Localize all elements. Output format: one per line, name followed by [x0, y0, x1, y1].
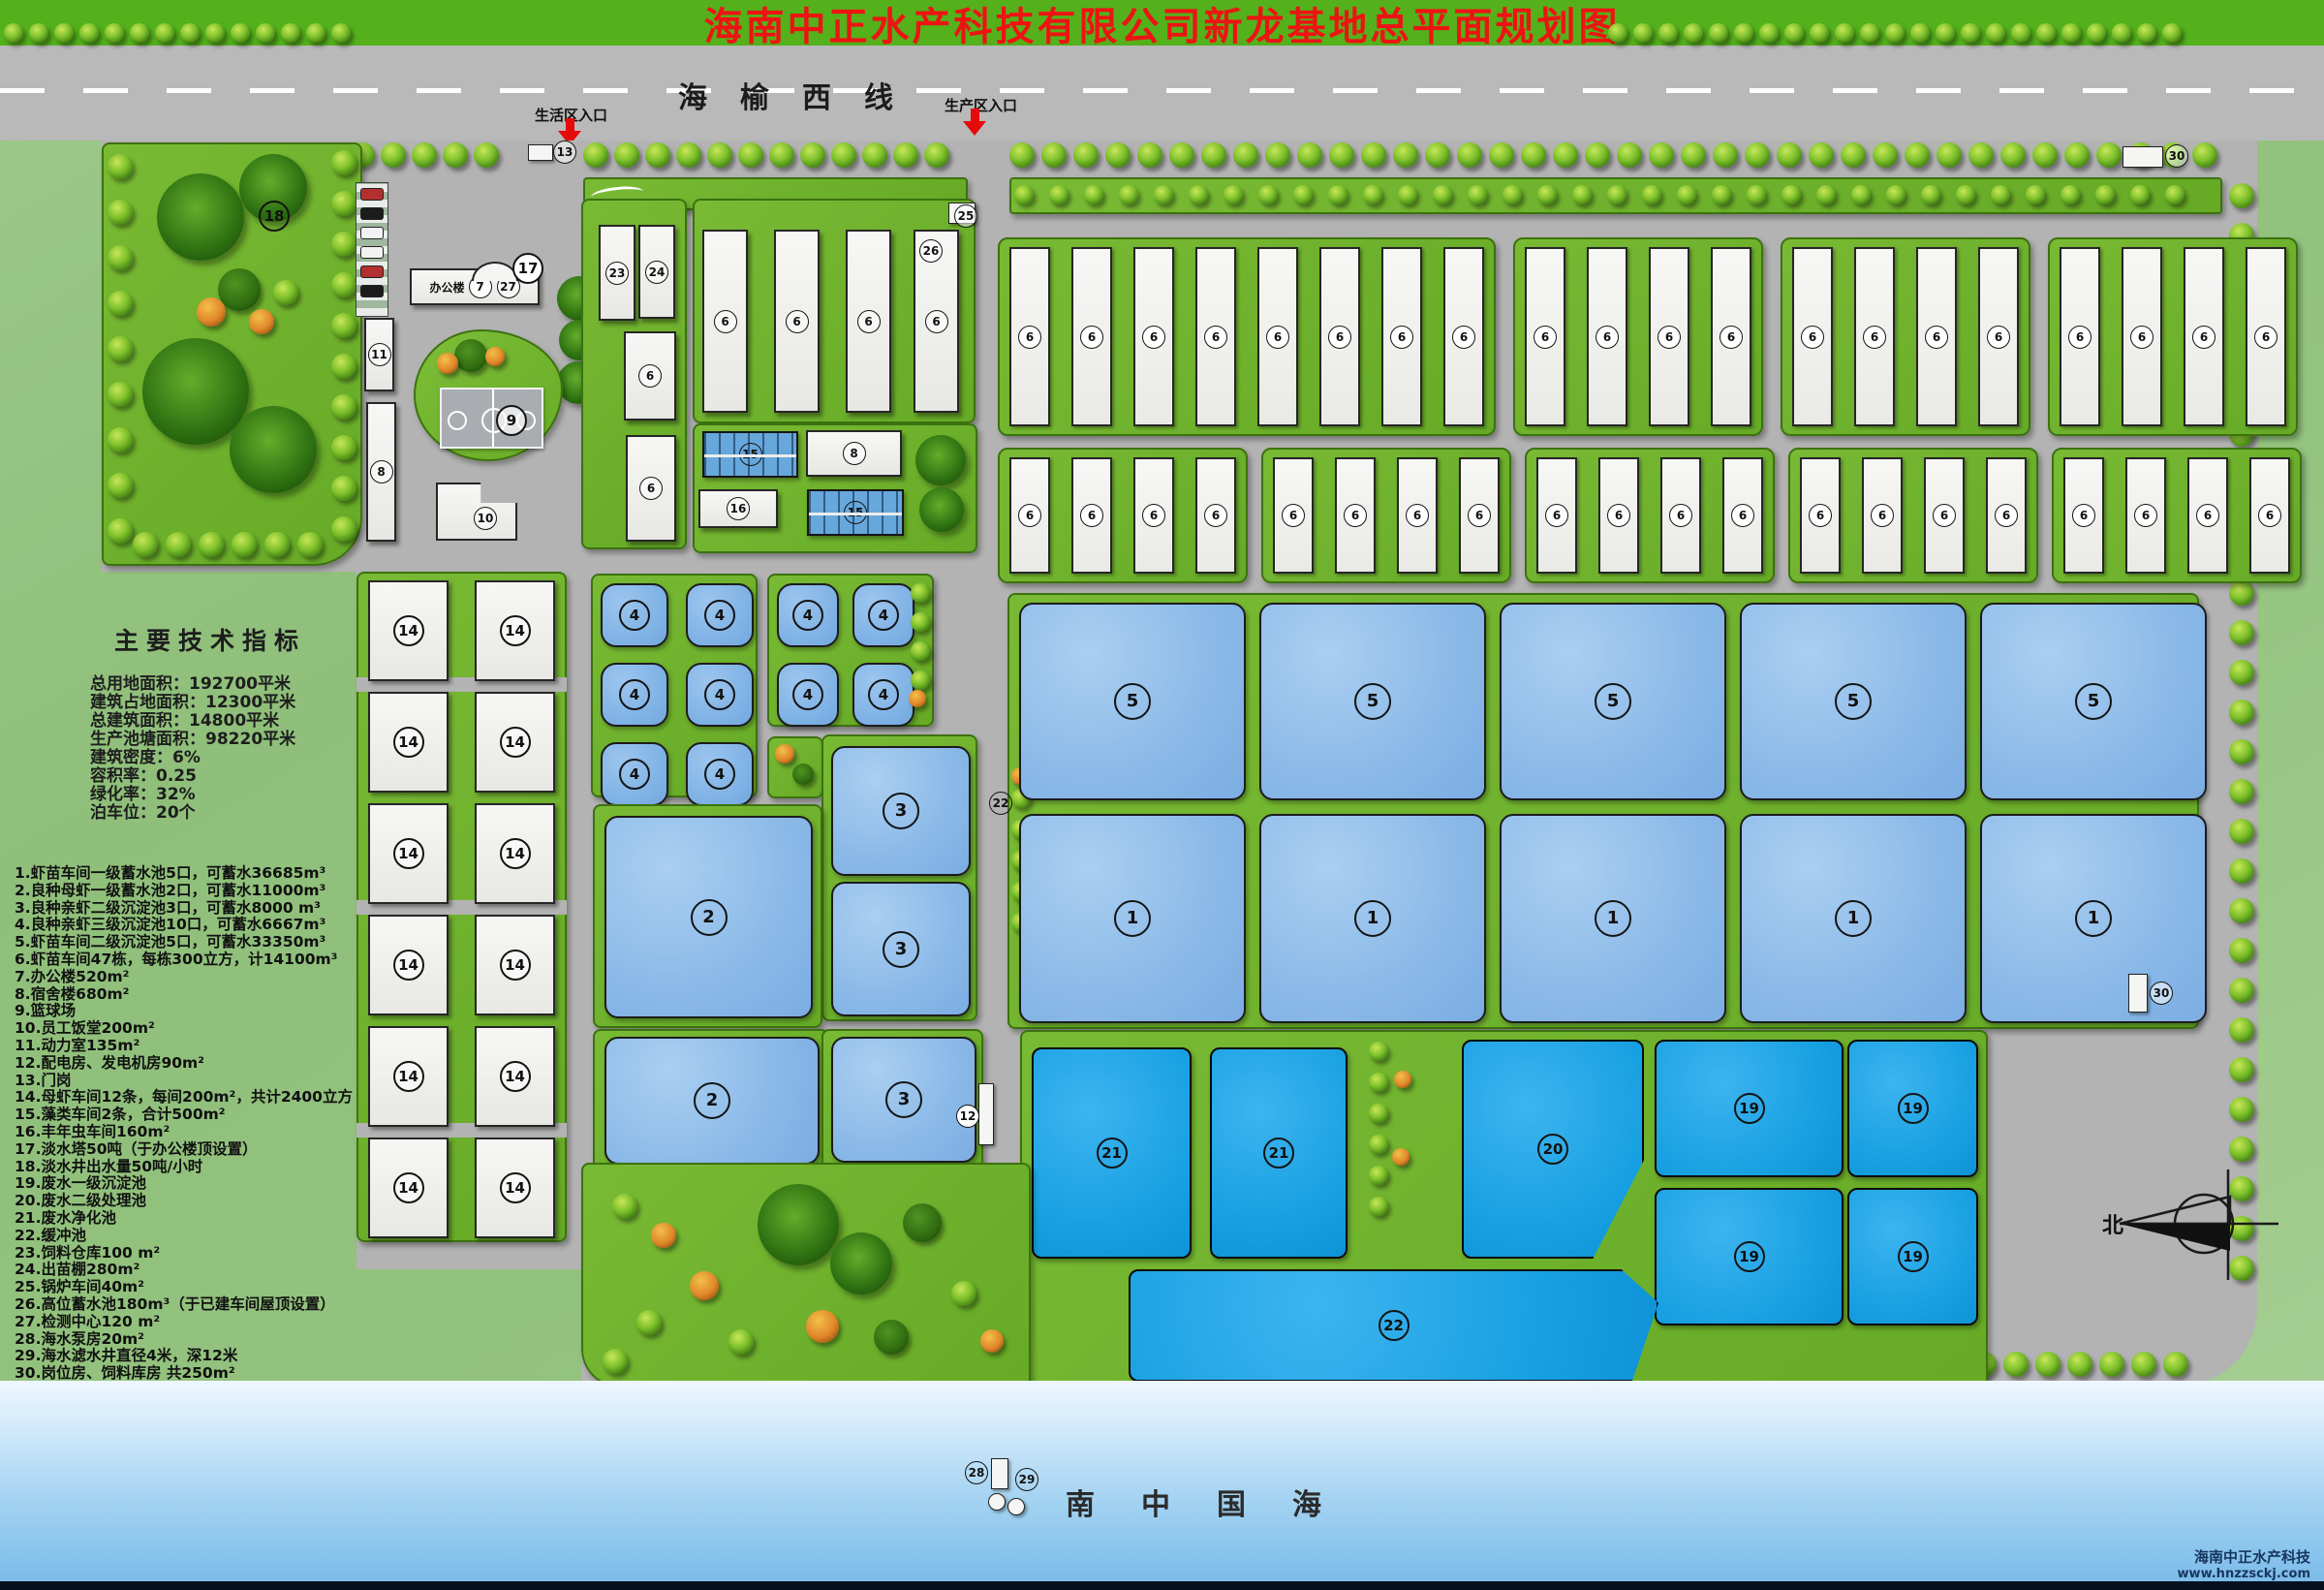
label-6-workshop: 6	[1995, 504, 2018, 527]
tree-row	[583, 142, 949, 168]
workshop-building: 6	[1133, 247, 1174, 426]
feed-warehouse-parcel: 23 24 6 6	[581, 199, 687, 549]
tree-icon	[1073, 142, 1099, 168]
workshop-building: 6	[1381, 247, 1422, 426]
tree-icon	[1537, 185, 1557, 204]
south-park	[581, 1163, 1031, 1387]
label-4-settling: 4	[792, 679, 823, 710]
workshop-building: 6	[1071, 457, 1112, 574]
seedling-shed-building: 24	[638, 225, 675, 319]
tree-icon	[108, 427, 133, 452]
tree-icon	[2229, 620, 2254, 645]
tree-icon	[1677, 185, 1696, 204]
tree-icon	[256, 23, 275, 43]
label-6-workshop: 6	[2072, 504, 2095, 527]
mother-shrimp-workshop: 14	[368, 803, 449, 904]
tree-icon	[1784, 23, 1804, 43]
label-6-workshop: 6	[2192, 326, 2216, 349]
label-6-workshop: 6	[1080, 504, 1103, 527]
tree-icon	[1860, 23, 1879, 43]
tree-icon	[636, 1310, 662, 1335]
pond-row: 44	[593, 583, 756, 647]
workshop-building: 6	[1443, 247, 1484, 426]
settling-pond-block-b: 44 44	[767, 574, 934, 727]
tree-icon	[105, 23, 124, 43]
tree-icon	[1521, 142, 1546, 168]
tertiary-settling-pond: 4	[777, 663, 839, 727]
workshop-building: 6	[1862, 457, 1903, 574]
tree-icon	[1684, 23, 1703, 43]
secondary-settling-pond: 3	[831, 746, 971, 876]
tree-icon	[108, 200, 133, 225]
label-6-workshop: 6	[2196, 504, 2219, 527]
label-8-dormitory: 8	[370, 460, 393, 483]
workshop-building: 6	[1335, 457, 1376, 574]
mother-shrimp-workshop: 14	[475, 915, 555, 1015]
label-14-mother-shrimp: 14	[500, 615, 531, 646]
tree-icon	[2137, 23, 2156, 43]
tree-icon	[2229, 779, 2254, 804]
workshop-building: 6	[1660, 457, 1701, 574]
label-5-pond: 5	[2075, 683, 2112, 720]
tree-icon	[437, 353, 458, 374]
basketball-court: 9	[440, 388, 543, 449]
workshop-building: 6	[1986, 457, 2027, 574]
label-14-mother-shrimp: 14	[500, 1172, 531, 1203]
tree-icon	[4, 23, 23, 43]
workshop-building: 6	[1916, 247, 1957, 426]
tree-icon	[2229, 739, 2254, 764]
tree-icon	[645, 142, 670, 168]
workshop-row: 1414	[358, 803, 565, 900]
label-16-brine-shrimp: 16	[727, 497, 750, 520]
label-6-workshop: 6	[1452, 326, 1475, 349]
tree-icon	[2229, 1017, 2254, 1043]
tree-icon	[1398, 185, 1417, 204]
label-30-post-house: 30	[2150, 982, 2173, 1005]
label-15-algae: 15	[739, 443, 762, 466]
pond-row: 44	[593, 742, 756, 806]
filter-well	[988, 1493, 1006, 1511]
secondary-settling-parcel: 3	[821, 1029, 983, 1169]
label-9-basketball-court: 9	[496, 405, 527, 436]
label-6-workshop: 6	[2254, 326, 2278, 349]
tree-icon	[331, 394, 356, 420]
label-6-workshop: 6	[1406, 504, 1429, 527]
palm-tree-icon	[915, 435, 966, 485]
site-area: 18 13 办公楼 7 27 17 11 8 10	[102, 140, 2257, 1386]
tree-icon	[2229, 1137, 2254, 1162]
label-6-workshop: 6	[1545, 504, 1568, 527]
sea-name-char: 南	[1066, 1481, 1095, 1523]
tree-icon	[133, 532, 158, 557]
tree-icon	[2229, 1097, 2254, 1122]
label-4-settling: 4	[619, 679, 650, 710]
compass-north-label: 北	[2102, 1214, 2123, 1238]
tree-icon	[614, 142, 639, 168]
tree-icon	[2096, 142, 2122, 168]
algae-workshop-pond: 15	[807, 489, 904, 536]
tree-icon	[792, 764, 814, 785]
workshop-building: 6	[774, 230, 820, 413]
mother-shrimp-workshop: 14	[368, 580, 449, 681]
tree-icon	[264, 532, 290, 557]
tree-icon	[1607, 185, 1627, 204]
workshop-building: 6	[1854, 247, 1895, 426]
palm-tree-icon	[157, 173, 244, 261]
tree-icon	[1841, 142, 1866, 168]
pond-row-1: 11111	[1019, 814, 2207, 1023]
tertiary-settling-pond: 4	[601, 742, 668, 806]
tree-icon	[331, 516, 356, 542]
label-6-workshop: 6	[786, 310, 809, 333]
tree-icon	[108, 245, 133, 270]
feed-warehouse-building: 23	[599, 225, 635, 321]
car-icon	[360, 265, 384, 278]
label-5-pond: 5	[1835, 683, 1872, 720]
tree-icon	[331, 476, 356, 501]
pond-row: 44	[769, 663, 932, 727]
mother-shrimp-workshop: 14	[368, 1026, 449, 1127]
label-14-mother-shrimp: 14	[393, 1061, 424, 1092]
label-6-workshop: 6	[1204, 504, 1227, 527]
tree-icon	[862, 142, 887, 168]
tree-icon	[1851, 185, 1871, 204]
tree-icon	[1658, 23, 1678, 43]
tree-icon	[1968, 142, 1994, 168]
tertiary-settling-pond: 4	[852, 663, 914, 727]
label-21-purification: 21	[1097, 1138, 1128, 1169]
car-icon	[360, 285, 384, 297]
tree-icon	[1369, 1073, 1388, 1092]
tree-icon	[1369, 1166, 1388, 1185]
tree-icon	[2061, 185, 2080, 204]
tree-icon	[331, 191, 356, 216]
tree-icon	[1885, 23, 1905, 43]
workshop-building: 6	[1800, 457, 1841, 574]
label-22-buffer: 22	[1379, 1310, 1410, 1341]
tree-icon	[1329, 142, 1354, 168]
tree-icon	[2229, 660, 2254, 685]
label-14-mother-shrimp: 14	[500, 1061, 531, 1092]
workshop-building: 6	[1459, 457, 1500, 574]
tree-icon	[155, 23, 174, 43]
label-6-workshop: 6	[1266, 326, 1289, 349]
label-1-pond: 1	[2075, 900, 2112, 937]
label-6-workshop: 6	[1871, 504, 1894, 527]
workshop-building: 6	[2125, 457, 2166, 574]
brine-shrimp-building: 16	[698, 489, 778, 528]
tree-icon	[231, 23, 250, 43]
workshop-building: 6	[1195, 247, 1236, 426]
tree-icon	[603, 1349, 628, 1374]
tree-icon	[911, 583, 930, 603]
tree-icon	[1363, 185, 1382, 204]
mother-shrimp-workshop: 14	[368, 1138, 449, 1238]
label-6-workshop: 6	[638, 364, 662, 388]
palm-tree-icon	[919, 487, 964, 532]
workshop-building: 6	[1598, 457, 1639, 574]
tree-icon	[738, 142, 763, 168]
tree-icon	[800, 142, 825, 168]
workshop-group: 6666	[998, 448, 1248, 583]
tertiary-settling-pond: 4	[777, 583, 839, 647]
tree-icon	[1105, 142, 1131, 168]
car-icon	[360, 227, 384, 239]
highway	[0, 46, 2324, 140]
workshop-building: 6	[1649, 247, 1689, 426]
tree-icon	[108, 154, 133, 179]
tree-icon	[331, 354, 356, 379]
tree-icon	[1991, 185, 2010, 204]
tertiary-settling-pond: 4	[686, 583, 754, 647]
tree-icon	[2229, 1057, 2254, 1082]
secondary-settling-parcel: 3 3	[821, 734, 977, 1021]
tree-icon	[180, 23, 200, 43]
tree-icon	[79, 23, 99, 43]
label-20-treatment: 20	[1537, 1134, 1568, 1165]
sea-name-char: 国	[1217, 1481, 1246, 1523]
tree-icon	[2229, 700, 2254, 725]
tree-icon	[903, 1203, 942, 1242]
tree-icon	[911, 612, 930, 632]
workshop-building: 6	[1722, 457, 1763, 574]
tree-icon	[454, 339, 487, 372]
tree-icon	[2036, 23, 2056, 43]
workshop-row: 1414	[358, 1138, 565, 1234]
car-icon	[360, 207, 384, 220]
workshop-building: 6	[1924, 457, 1965, 574]
tree-icon	[1816, 185, 1836, 204]
tree-icon	[1369, 1042, 1388, 1061]
tree-icon	[1759, 23, 1779, 43]
tree-icon	[29, 23, 48, 43]
tree-icon	[874, 1320, 909, 1355]
label-14-mother-shrimp: 14	[393, 950, 424, 981]
tree-icon	[676, 142, 701, 168]
tree-icon	[1468, 185, 1487, 204]
label-6-workshop: 6	[2068, 326, 2092, 349]
tree-icon	[1224, 185, 1243, 204]
tree-icon	[1457, 142, 1482, 168]
mother-shrimp-storage-pond: 2	[604, 816, 813, 1018]
tree-column	[1369, 1042, 1388, 1216]
workshop-group: 6666	[1525, 448, 1775, 583]
tree-icon	[1713, 142, 1738, 168]
production-pond-parcel: 55555 11111	[1007, 593, 2199, 1029]
label-21-purification: 21	[1263, 1138, 1294, 1169]
tree-icon	[690, 1271, 719, 1300]
workshop-building: 6	[2063, 457, 2104, 574]
secondary-workshop-pond: 5	[1019, 603, 1246, 800]
tree-icon	[199, 532, 224, 557]
workshop-building: 6	[1525, 247, 1565, 426]
pond-row: 44	[769, 583, 932, 647]
label-12-generator: 12	[956, 1105, 979, 1128]
label-29-filter-well: 29	[1015, 1468, 1038, 1491]
workshop-group: 6666	[1513, 237, 1763, 436]
label-1-pond: 1	[1114, 900, 1151, 937]
car-icon	[360, 188, 384, 201]
tree-icon	[1905, 142, 1930, 168]
workshop-row: 6666 6666 6666 6666 6666	[998, 448, 2302, 583]
tree-icon	[1369, 1135, 1388, 1154]
bottom-border	[0, 1581, 2324, 1590]
secondary-treatment-pond: 20	[1462, 1040, 1644, 1259]
tree-icon	[2011, 23, 2030, 43]
label-6-workshop: 6	[1142, 504, 1165, 527]
primary-settling-pond: 19	[1847, 1188, 1978, 1325]
power-room-building: 11	[364, 318, 394, 391]
tree-icon	[2095, 185, 2115, 204]
pond-row-5: 55555	[1019, 603, 2207, 800]
tree-icon	[2229, 183, 2254, 208]
sea-name-char: 海	[1292, 1481, 1321, 1523]
label-3-settling: 3	[885, 1081, 922, 1118]
label-6-workshop: 6	[1596, 326, 1619, 349]
mother-shrimp-workshop: 14	[368, 692, 449, 793]
tree-row	[4, 23, 351, 43]
court-park: 9	[414, 329, 563, 461]
label-6-workshop: 6	[1658, 326, 1681, 349]
tree-icon	[2229, 978, 2254, 1003]
label-5-pond: 5	[1114, 683, 1151, 720]
label-6-workshop: 6	[639, 477, 663, 500]
tree-row	[133, 532, 323, 557]
tree-icon	[1009, 142, 1035, 168]
tree-icon	[1297, 142, 1322, 168]
tree-icon	[1709, 23, 1728, 43]
tree-icon	[1986, 23, 2005, 43]
label-13-gate: 13	[553, 140, 576, 164]
tree-icon	[2192, 142, 2217, 168]
tree-icon	[1258, 185, 1278, 204]
tree-icon	[2162, 23, 2182, 43]
label-18-freshwater-well: 18	[259, 201, 290, 232]
label-6-workshop: 6	[1018, 326, 1041, 349]
tree-icon	[412, 142, 437, 168]
tree-icon	[728, 1329, 754, 1355]
label-4-settling: 4	[868, 679, 899, 710]
tree-icon	[951, 1281, 976, 1306]
gate-house	[528, 144, 553, 161]
primary-storage-pond: 1	[1019, 814, 1246, 1023]
label-17-water-tower: 17	[512, 253, 543, 284]
tree-icon	[775, 744, 794, 764]
mother-shrimp-workshop: 14	[475, 692, 555, 793]
tree-icon	[1809, 142, 1834, 168]
tree-icon	[331, 23, 351, 43]
label-6-workshop: 6	[1933, 504, 1956, 527]
workshop-row: 1414	[358, 580, 565, 677]
label-6-workshop: 6	[1018, 504, 1041, 527]
label-2-storage: 2	[691, 899, 728, 936]
workshop-group: 6666	[2048, 237, 2298, 436]
tree-icon	[806, 1310, 839, 1343]
mother-shrimp-storage-pond: 2	[604, 1037, 820, 1165]
mother-shrimp-workshop: 14	[475, 803, 555, 904]
label-4-settling: 4	[704, 600, 735, 631]
label-6-workshop: 6	[925, 310, 948, 333]
label-5-pond: 5	[1354, 683, 1391, 720]
page-title: 海南中正水产科技有限公司新龙基地总平面规划图	[704, 0, 1621, 51]
label-6-workshop: 6	[1390, 326, 1413, 349]
label-6-workshop: 6	[1344, 504, 1367, 527]
tree-icon	[1956, 185, 1975, 204]
tree-icon	[2130, 185, 2150, 204]
label-6-workshop: 6	[1142, 326, 1165, 349]
tertiary-settling-pond: 4	[852, 583, 914, 647]
palm-tree-icon	[230, 406, 317, 493]
tree-icon	[2000, 142, 2026, 168]
tree-icon	[197, 297, 226, 327]
label-6-workshop: 6	[1731, 504, 1754, 527]
tree-icon	[1293, 185, 1313, 204]
workshop-row: 1414	[358, 1026, 565, 1123]
label-6-workshop: 6	[1534, 326, 1557, 349]
palm-tree-icon	[142, 338, 249, 445]
tree-icon	[1233, 142, 1258, 168]
label-6-workshop: 6	[1282, 504, 1305, 527]
tree-icon	[273, 280, 298, 305]
label-24-seedling-shed: 24	[645, 261, 668, 284]
label-3-settling: 3	[883, 793, 919, 829]
label-6-workshop: 6	[1720, 326, 1743, 349]
tree-icon	[1049, 185, 1069, 204]
tree-icon	[769, 142, 794, 168]
tree-icon	[108, 518, 133, 544]
tree-icon	[2229, 858, 2254, 884]
tree-icon	[1265, 142, 1290, 168]
label-19-settling: 19	[1734, 1093, 1765, 1124]
workshop-building: 6	[702, 230, 748, 413]
tree-icon	[1642, 185, 1661, 204]
road-centerline	[0, 88, 2324, 93]
tertiary-settling-pond: 4	[686, 742, 754, 806]
tree-icon	[1608, 23, 1627, 43]
label-6-workshop: 6	[2130, 326, 2154, 349]
tree-icon	[1910, 23, 1930, 43]
label-19-settling: 19	[1734, 1241, 1765, 1272]
workshop-building: 6	[1009, 457, 1050, 574]
sea-name-char: 中	[1141, 1481, 1170, 1523]
tree-icon	[1681, 142, 1706, 168]
tertiary-settling-pond: 4	[686, 663, 754, 727]
purification-pond: 21	[1032, 1047, 1192, 1259]
tree-icon	[1886, 185, 1906, 204]
tree-icon	[232, 532, 257, 557]
workshop-group: 66666666	[998, 237, 1496, 436]
workshop-building: 6	[1009, 247, 1050, 426]
mother-shrimp-workshop: 14	[475, 1026, 555, 1127]
tree-icon	[651, 1223, 676, 1248]
sea: 南中国海 28 29	[0, 1381, 2324, 1590]
algae-parcel: 15 8 16 15	[693, 423, 977, 553]
label-6-workshop: 6	[1204, 326, 1227, 349]
label-14-mother-shrimp: 14	[500, 950, 531, 981]
workshop-building: 6	[1711, 247, 1751, 426]
tree-icon	[1014, 185, 1034, 204]
label-19-settling: 19	[1898, 1241, 1929, 1272]
label-6-workshop: 6	[1468, 504, 1491, 527]
filter-well	[1007, 1498, 1025, 1515]
tree-icon	[2064, 142, 2090, 168]
workshop-building: 6	[1257, 247, 1298, 426]
label-1-pond: 1	[1595, 900, 1631, 937]
label-28-pump-house: 28	[965, 1461, 988, 1484]
label-4-settling: 4	[619, 600, 650, 631]
secondary-workshop-pond: 5	[1740, 603, 1967, 800]
